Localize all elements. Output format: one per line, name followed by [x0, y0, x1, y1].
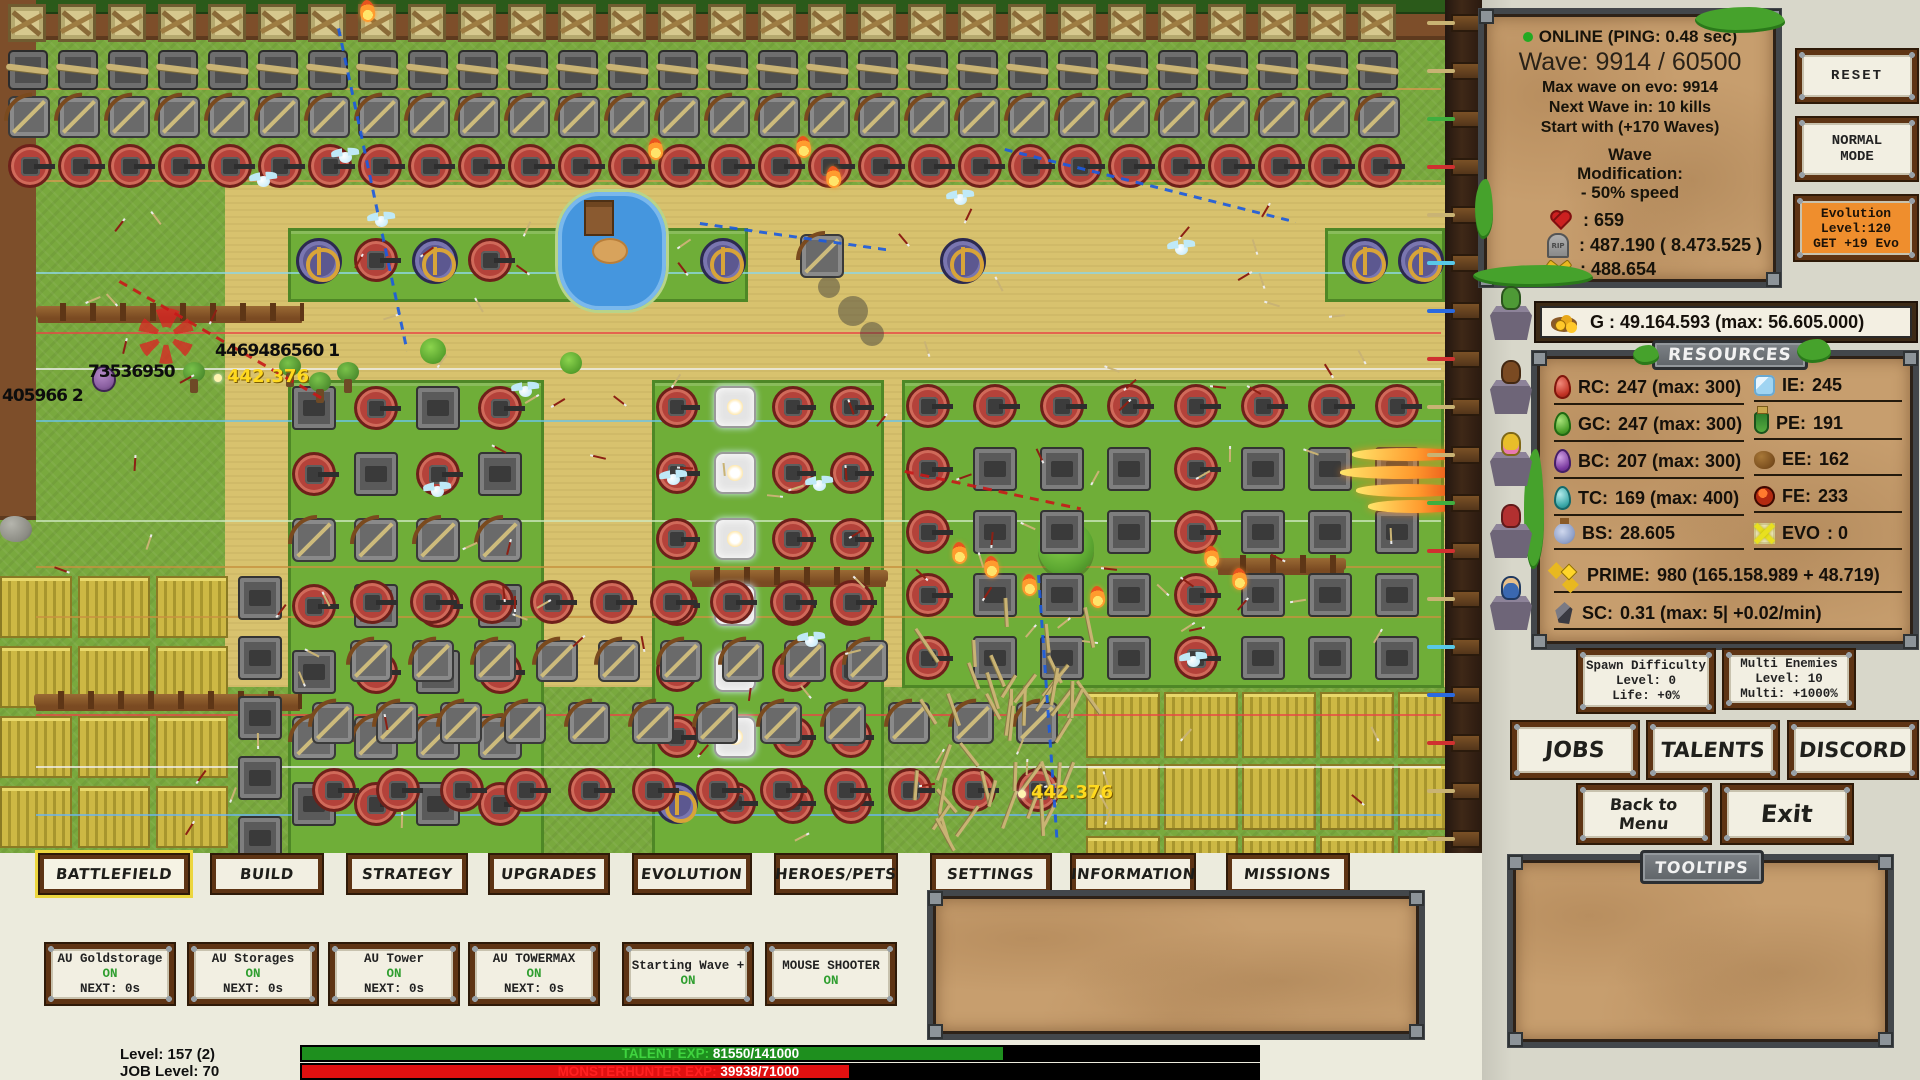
- arrow-debris: [145, 534, 152, 550]
- tower-red: [558, 144, 602, 188]
- tower-grey: [1241, 510, 1285, 554]
- tower-ballista: [408, 50, 448, 90]
- tower-grey: [973, 573, 1017, 617]
- resource-sc: SC:0.31 (max: 5| +0.02/min): [1554, 602, 1902, 630]
- tower-ballista: [1358, 50, 1398, 90]
- enemy-bird: [424, 482, 450, 500]
- tower-red: [770, 580, 814, 624]
- trophy-figure-icon: [1501, 432, 1521, 456]
- wheat-plot: [1086, 836, 1160, 853]
- tower-red: [1040, 384, 1084, 428]
- tower-red: [908, 144, 952, 188]
- tower-wood: [8, 4, 46, 42]
- wall-arrow-icon: [1427, 741, 1455, 745]
- tower-bow: [568, 702, 610, 744]
- tower-wood: [1258, 4, 1296, 42]
- tower-red: [458, 144, 502, 188]
- status-panel: ONLINE (PING: 0.48 sec) Wave: 9914 / 605…: [1484, 14, 1776, 282]
- toggle-au-goldstorage[interactable]: AU GoldstorageONNEXT: 0s: [46, 944, 174, 1004]
- tower-red: [1158, 144, 1202, 188]
- tower-wood: [1158, 4, 1196, 42]
- tower-red: [656, 518, 698, 560]
- tower-red: [590, 580, 634, 624]
- tower-wood: [58, 4, 96, 42]
- tab-settings[interactable]: SETTINGS: [932, 855, 1050, 893]
- next-wave: Next Wave in: 10 kills: [1487, 99, 1773, 117]
- tower-bow: [354, 518, 398, 562]
- tower-bow: [508, 96, 550, 138]
- tower-ballista: [508, 50, 548, 90]
- resource-bc: BC:207 (max: 300): [1554, 449, 1744, 479]
- enemy-bird: [798, 632, 824, 650]
- tower-red: [508, 144, 552, 188]
- tower-wood: [158, 4, 196, 42]
- tower-red: [108, 144, 152, 188]
- game-screen: { "hud": { "status": { "online": "ONLINE…: [0, 0, 1920, 1080]
- tab-strategy[interactable]: STRATEGY: [348, 855, 466, 893]
- arrow-pile: [1070, 681, 1074, 718]
- tower-wood: [458, 4, 496, 42]
- wave-mod-2: Modification:: [1487, 164, 1773, 184]
- tower-red: [1107, 384, 1151, 428]
- tower-bow: [358, 96, 400, 138]
- tower-bow: [1108, 96, 1150, 138]
- wall-peg: [1451, 62, 1481, 80]
- tower-grey: [1107, 447, 1151, 491]
- red-burst: [138, 308, 194, 364]
- tower-grey: [238, 576, 282, 620]
- resource-evo: EVO: 0: [1754, 523, 1902, 550]
- wheat-plot: [1242, 764, 1316, 830]
- tower-grey: [1308, 510, 1352, 554]
- tower-red: [708, 144, 752, 188]
- arrow-pile: [1002, 791, 1019, 829]
- watchtower-hut: [584, 200, 614, 236]
- tower-red: [658, 144, 702, 188]
- enemy-bird: [660, 470, 686, 488]
- enemy-bird: [947, 190, 973, 208]
- tower-bow: [376, 702, 418, 744]
- wall-peg: [1451, 686, 1481, 704]
- evo-cross-icon: [1754, 523, 1775, 544]
- monsterhunter-exp-bar: MONSTERHUNTER EXP: 39938/71000: [300, 1063, 1260, 1080]
- resources-sign: RESOURCES: [1652, 340, 1808, 370]
- arrow-debris: [122, 338, 128, 354]
- tab-upgrades[interactable]: UPGRADES: [490, 855, 608, 893]
- tower-grey: [973, 636, 1017, 680]
- tower-bow: [808, 96, 850, 138]
- tower-bow: [760, 702, 802, 744]
- tower-red: [440, 768, 484, 812]
- tower-wood: [708, 4, 746, 42]
- hero-statue-3[interactable]: [1488, 434, 1534, 486]
- tower-red: [1174, 447, 1218, 491]
- tower-bow: [474, 640, 516, 682]
- tower-grey: [1375, 573, 1419, 617]
- enemy-bird: [368, 212, 394, 230]
- wall-arrow-icon: [1427, 645, 1455, 649]
- damage-number: 73536950: [88, 362, 175, 382]
- toggle-au-tower[interactable]: AU TowerONNEXT: 0s: [330, 944, 458, 1004]
- wheat-plot: [156, 716, 228, 778]
- tower-ballista: [708, 50, 748, 90]
- enemy-bird: [1180, 652, 1206, 670]
- fire-rock-icon: [1754, 486, 1775, 507]
- enemy-bird: [1168, 240, 1194, 258]
- tower-red: [650, 580, 694, 624]
- tower-red: [410, 580, 454, 624]
- wall-arrow-icon: [1427, 837, 1455, 841]
- wheat-plot: [0, 576, 72, 638]
- tower-ballista: [358, 50, 398, 90]
- damage-number: 405966 2: [2, 386, 83, 406]
- exit-button[interactable]: Exit: [1722, 785, 1852, 843]
- tower-grey: [1375, 636, 1419, 680]
- tower-red: [1174, 573, 1218, 617]
- tower-bow: [660, 640, 702, 682]
- tower-ballista: [58, 50, 98, 90]
- tower-bow: [108, 96, 150, 138]
- tower-bow: [158, 96, 200, 138]
- tower-bow: [598, 640, 640, 682]
- purple-crystal-icon: [1554, 449, 1571, 473]
- tower-bow: [708, 96, 750, 138]
- tower-red: [608, 144, 652, 188]
- tower-med: [296, 238, 342, 284]
- tower-wood: [1208, 4, 1246, 42]
- wall-peg: [1451, 398, 1481, 416]
- tower-wood: [208, 4, 246, 42]
- wheat-plot: [1164, 692, 1238, 758]
- tower-bow: [478, 518, 522, 562]
- wheat-plot: [1320, 836, 1394, 853]
- tower-ballista: [808, 50, 848, 90]
- resource-fe: FE:233: [1754, 486, 1902, 513]
- tower-red: [208, 144, 252, 188]
- tower-bow: [1008, 96, 1050, 138]
- tower-red: [1358, 144, 1402, 188]
- back-to-menu-button[interactable]: Back to Menu: [1578, 785, 1710, 843]
- tower-bow: [958, 96, 1000, 138]
- arrow-debris: [256, 733, 258, 749]
- wall-peg: [1451, 830, 1481, 848]
- tower-med: [940, 238, 986, 284]
- tower-red: [710, 580, 754, 624]
- wall-arrow-icon: [1427, 693, 1455, 697]
- tower-red: [973, 384, 1017, 428]
- tower-bow: [858, 96, 900, 138]
- heart-icon: [1549, 211, 1573, 231]
- bush: [560, 352, 582, 374]
- tower-wood: [1008, 4, 1046, 42]
- tower-ballista: [1058, 50, 1098, 90]
- tower-red: [772, 386, 814, 428]
- tooltips-panel: [1513, 860, 1888, 1042]
- rock: [0, 516, 32, 542]
- tower-red: [906, 447, 950, 491]
- resource-gc: GC:247 (max: 300): [1554, 412, 1744, 442]
- lives-row: : 659: [1549, 210, 1624, 231]
- wheat-plot: [0, 716, 72, 778]
- wall-peg: [1451, 590, 1481, 608]
- tower-red: [1308, 144, 1352, 188]
- tower-red: [772, 518, 814, 560]
- arrow-debris: [1229, 446, 1231, 462]
- tab-missions[interactable]: MISSIONS: [1228, 855, 1348, 893]
- tower-grey: [1040, 447, 1084, 491]
- tower-red: [1308, 384, 1352, 428]
- evolution-button[interactable]: Evolution Level:120 GET +19 Evo: [1795, 196, 1917, 260]
- wall-arrow-icon: [1427, 309, 1455, 313]
- wave-mod-3: - 50% speed: [1487, 183, 1773, 203]
- green-potion-icon: [1754, 412, 1769, 434]
- tower-red: [468, 238, 512, 282]
- tower-grey: [478, 452, 522, 496]
- tower-red: [760, 768, 804, 812]
- hero-figure-icon: [1501, 576, 1521, 600]
- wall-arrow-icon: [1427, 69, 1455, 73]
- wall-arrow-icon: [1427, 453, 1455, 457]
- tower-med: [412, 238, 458, 284]
- jobs-button[interactable]: JOBS: [1512, 722, 1638, 778]
- wall-arrow-icon: [1427, 213, 1455, 217]
- tower-grey: [973, 447, 1017, 491]
- battlefield-map[interactable]: 4469486560 1 73536950 405966 2 442.376 4…: [0, 0, 1445, 853]
- info-display-panel: [933, 896, 1419, 1034]
- spawn-difficulty-button[interactable]: Spawn Difficulty Level: 0 Life: +0%: [1578, 650, 1714, 712]
- wheat-plot: [78, 786, 150, 848]
- gold-bar-face: G : 49.164.593 (max: 56.605.000): [1540, 306, 1912, 338]
- damage-number: 4469486560 1: [215, 341, 339, 361]
- tab-battlefield[interactable]: BATTLEFIELD: [40, 855, 188, 893]
- tower-shrine: [714, 518, 756, 560]
- wheat-plot: [1320, 692, 1394, 758]
- tower-bow: [416, 518, 460, 562]
- wheat-plot: [156, 786, 228, 848]
- wall-arrow-icon: [1427, 165, 1455, 169]
- tower-grey: [238, 636, 282, 680]
- tower-red: [376, 768, 420, 812]
- tower-ballista: [208, 50, 248, 90]
- tower-bow: [1208, 96, 1250, 138]
- tower-bow: [536, 640, 578, 682]
- reset-button[interactable]: RESET: [1797, 50, 1917, 102]
- tab-build[interactable]: BUILD: [212, 855, 322, 893]
- resource-ee: EE:162: [1754, 449, 1902, 476]
- wall-arrow-icon: [1427, 549, 1455, 553]
- wheat-plot: [0, 786, 72, 848]
- tower-grey: [1107, 510, 1151, 554]
- tower-bow: [1058, 96, 1100, 138]
- tower-wood: [558, 4, 596, 42]
- job-level: JOB Level: 70: [120, 1063, 219, 1080]
- tower-wood: [408, 4, 446, 42]
- statue-figure-icon: [1501, 360, 1521, 384]
- wave-counter: Wave: 9914 / 60500: [1487, 48, 1773, 77]
- wall-arrow-icon: [1427, 405, 1455, 409]
- tower-red: [824, 768, 868, 812]
- tower-wood: [808, 4, 846, 42]
- arrow-debris: [230, 787, 238, 803]
- tower-grey: [1040, 573, 1084, 617]
- tower-bow: [312, 702, 354, 744]
- wheat-plot: [1086, 692, 1160, 758]
- tower-bow: [208, 96, 250, 138]
- player-level: Level: 157 (2): [120, 1046, 215, 1063]
- wheat-plot: [78, 576, 150, 638]
- aim-line: [36, 332, 1441, 334]
- red-mage-figure-icon: [1501, 504, 1521, 528]
- tower-wood: [908, 4, 946, 42]
- normal-mode-button[interactable]: NORMAL MODE: [1797, 118, 1917, 180]
- wall-arrow-icon: [1427, 597, 1455, 601]
- fire-lance: [1356, 484, 1445, 497]
- tab-evolution[interactable]: EVOLUTION: [634, 855, 750, 893]
- wheat-plot: [1164, 764, 1238, 830]
- dark-crystal-icon: [1554, 602, 1575, 624]
- gold-coins-icon: [1550, 311, 1580, 333]
- tower-red: [568, 768, 612, 812]
- wall-peg: [1451, 14, 1481, 32]
- tower-wood: [258, 4, 296, 42]
- tower-red: [858, 144, 902, 188]
- tower-red: [408, 144, 452, 188]
- tower-ballista: [1258, 50, 1298, 90]
- wheat-plot: [1398, 764, 1445, 830]
- tower-grey: [1107, 573, 1151, 617]
- tower-grey: [1040, 510, 1084, 554]
- tower-grey: [1241, 447, 1285, 491]
- resources-panel: RC:247 (max: 300) GC:247 (max: 300) BC:2…: [1537, 356, 1913, 644]
- wheat-plot: [1242, 692, 1316, 758]
- wall-peg: [1451, 734, 1481, 752]
- tower-red: [830, 580, 874, 624]
- tower-red: [1258, 144, 1302, 188]
- tower-ballista: [958, 50, 998, 90]
- tower-bow: [350, 640, 392, 682]
- tower-bow: [440, 702, 482, 744]
- toggle-starting-wave[interactable]: Starting Wave +ON: [624, 944, 752, 1004]
- toggle-mouse-shooter[interactable]: MOUSE SHOOTERON: [767, 944, 895, 1004]
- tower-red: [354, 386, 398, 430]
- wall-peg: [1451, 782, 1481, 800]
- tower-ballista: [158, 50, 198, 90]
- tower-bow: [58, 96, 100, 138]
- wall-peg: [1451, 254, 1481, 272]
- hero-statue-5[interactable]: [1488, 578, 1534, 630]
- flame: [647, 137, 664, 160]
- red-crystal-icon: [1554, 375, 1571, 399]
- tower-ballista: [558, 50, 598, 90]
- tab-information[interactable]: INFORMATION: [1072, 855, 1194, 893]
- tower-red: [1241, 384, 1285, 428]
- resource-rc: RC:247 (max: 300): [1554, 375, 1744, 405]
- tower-wood: [958, 4, 996, 42]
- online-dot: [1523, 32, 1533, 42]
- hero-statue-4[interactable]: [1488, 506, 1534, 558]
- tower-bow: [258, 96, 300, 138]
- smoke-puff: [818, 276, 840, 298]
- tower-ballista: [758, 50, 798, 90]
- wall-arrow-icon: [1427, 117, 1455, 121]
- tooltips-sign: TOOLTIPS: [1640, 850, 1764, 884]
- tower-ballista: [108, 50, 148, 90]
- arrow-debris: [401, 812, 403, 828]
- talents-button[interactable]: TALENTS: [1648, 722, 1778, 778]
- wall-peg: [1451, 110, 1481, 128]
- tower-bow: [1358, 96, 1400, 138]
- enemy-bird: [250, 172, 276, 190]
- tower-bow: [408, 96, 450, 138]
- wall-arrow-icon: [1427, 789, 1455, 793]
- tower-bow: [846, 640, 888, 682]
- arrow-debris: [114, 218, 125, 232]
- earth-rock-icon: [1754, 451, 1775, 469]
- tower-ballista: [908, 50, 948, 90]
- multi-enemies-button[interactable]: Multi Enemies Level: 10 Multi: +1000%: [1724, 650, 1854, 708]
- tower-bow: [458, 96, 500, 138]
- tower-bow: [308, 96, 350, 138]
- smoke-puff: [860, 322, 884, 346]
- tower-wood: [1358, 4, 1396, 42]
- tower-ballista: [8, 50, 48, 90]
- blue-flask-icon: [1554, 523, 1575, 544]
- wall-arrow-icon: [1427, 21, 1455, 25]
- tower-red: [1375, 384, 1419, 428]
- tower-red: [470, 580, 514, 624]
- start-with: Start with (+170 Waves): [1487, 119, 1773, 137]
- tower-red: [350, 580, 394, 624]
- tower-wood: [608, 4, 646, 42]
- tower-grey: [1308, 573, 1352, 617]
- tower-bow: [292, 518, 336, 562]
- hero-statue-2[interactable]: [1488, 362, 1534, 414]
- pond-island: [592, 238, 628, 264]
- smoke-puff: [838, 296, 868, 326]
- tower-red: [1174, 384, 1218, 428]
- hero-statue-1[interactable]: [1488, 288, 1534, 340]
- toggle-au-towermax[interactable]: AU TOWERMAXONNEXT: 0s: [470, 944, 598, 1004]
- tower-bow: [658, 96, 700, 138]
- toggle-au-storages[interactable]: AU StoragesONNEXT: 0s: [189, 944, 317, 1004]
- tower-red: [158, 144, 202, 188]
- tower-red: [632, 768, 676, 812]
- tower-grey: [1241, 573, 1285, 617]
- tab-heroes-pets[interactable]: HEROES/PETS: [776, 855, 896, 893]
- tower-bow: [758, 96, 800, 138]
- tower-ballista: [1008, 50, 1048, 90]
- tower-red: [504, 768, 548, 812]
- discord-button[interactable]: DISCORD: [1789, 722, 1917, 778]
- tower-wood: [1108, 4, 1146, 42]
- wheat-plot: [156, 576, 228, 638]
- arrow-pile: [935, 817, 955, 851]
- tower-red: [906, 384, 950, 428]
- enemy-bird: [512, 382, 538, 400]
- crit-number: 442.376: [214, 366, 309, 387]
- tower-red: [1208, 144, 1252, 188]
- tower-wood: [1308, 4, 1346, 42]
- max-wave: Max wave on evo: 9914: [1487, 79, 1773, 97]
- tower-bow: [696, 702, 738, 744]
- map-right-wall: [1445, 0, 1482, 858]
- tower-med: [1342, 238, 1388, 284]
- resource-pe: PE:191: [1754, 412, 1902, 440]
- tower-ballista: [1158, 50, 1198, 90]
- gravestone-icon: RIP: [1547, 233, 1569, 258]
- wheat-plot: [1398, 692, 1445, 758]
- tower-bow: [722, 640, 764, 682]
